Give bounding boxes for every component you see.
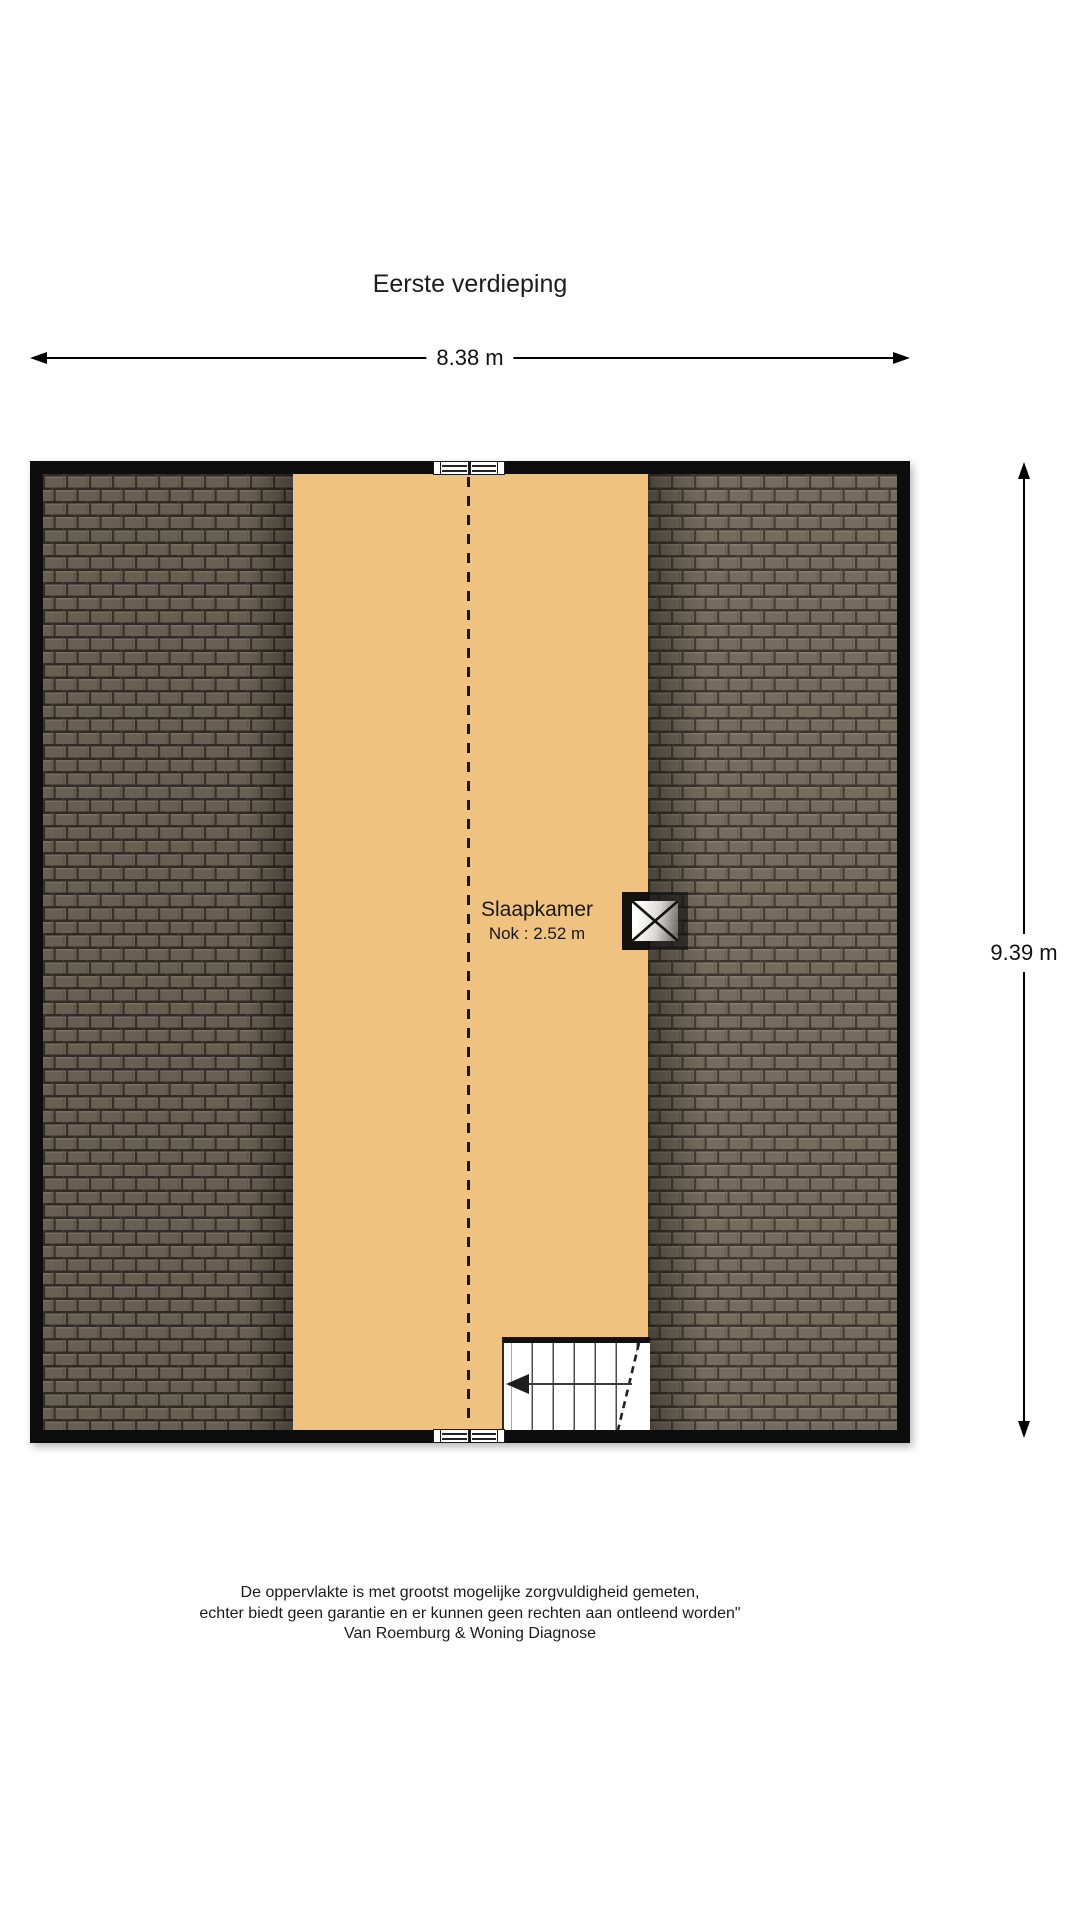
window-bottom-wall bbox=[433, 1429, 505, 1443]
room-ridge-height: Nok : 2.52 m bbox=[481, 924, 593, 944]
window-frame-cap bbox=[434, 1430, 441, 1442]
dimension-arrow-down-icon bbox=[1018, 1421, 1030, 1438]
stairs-direction-arrow-icon bbox=[506, 1374, 529, 1394]
page-title: Eerste verdieping bbox=[30, 270, 910, 299]
room-slaapkamer bbox=[293, 474, 648, 1430]
disclaimer: De oppervlakte is met grootst mogelijke … bbox=[30, 1583, 910, 1645]
window-glass-pane bbox=[472, 465, 497, 472]
floor-plan-interior: Slaapkamer Nok : 2.52 m bbox=[43, 474, 897, 1430]
roof-shadow-right bbox=[648, 474, 704, 1430]
window-glass-pane bbox=[472, 1433, 497, 1440]
roof-window-cross-icon bbox=[632, 901, 678, 941]
window-glass-pane bbox=[442, 465, 467, 472]
height-dimension-label: 9.39 m bbox=[987, 934, 1060, 972]
width-dimension: 8.38 m bbox=[30, 346, 910, 370]
window-top-wall bbox=[433, 461, 505, 475]
roof-area-right bbox=[648, 474, 897, 1430]
width-dimension-label: 8.38 m bbox=[426, 345, 513, 371]
window-mullion bbox=[468, 1430, 471, 1442]
roof-area-left bbox=[43, 474, 293, 1430]
stairs-direction-line bbox=[526, 1383, 632, 1385]
room-name: Slaapkamer bbox=[481, 898, 593, 922]
window-frame-cap bbox=[497, 462, 504, 474]
dimension-arrow-right-icon bbox=[893, 352, 910, 364]
roof-window-pane bbox=[632, 901, 678, 941]
roof-shadow-left bbox=[247, 474, 293, 1430]
staircase bbox=[502, 1337, 650, 1430]
window-frame-cap bbox=[497, 1430, 504, 1442]
floor-plan: Slaapkamer Nok : 2.52 m bbox=[30, 461, 910, 1443]
disclaimer-line: De oppervlakte is met grootst mogelijke … bbox=[30, 1583, 910, 1604]
height-dimension: 9.39 m bbox=[1014, 462, 1034, 1438]
disclaimer-line: Van Roemburg & Woning Diagnose bbox=[30, 1624, 910, 1645]
room-label: Slaapkamer Nok : 2.52 m bbox=[481, 898, 593, 944]
window-mullion bbox=[468, 462, 471, 474]
window-glass-pane bbox=[442, 1433, 467, 1440]
roof-ridge-dashed-line bbox=[467, 477, 470, 1425]
disclaimer-line: echter biedt geen garantie en er kunnen … bbox=[30, 1604, 910, 1625]
roof-window bbox=[622, 892, 688, 950]
window-frame-cap bbox=[434, 462, 441, 474]
